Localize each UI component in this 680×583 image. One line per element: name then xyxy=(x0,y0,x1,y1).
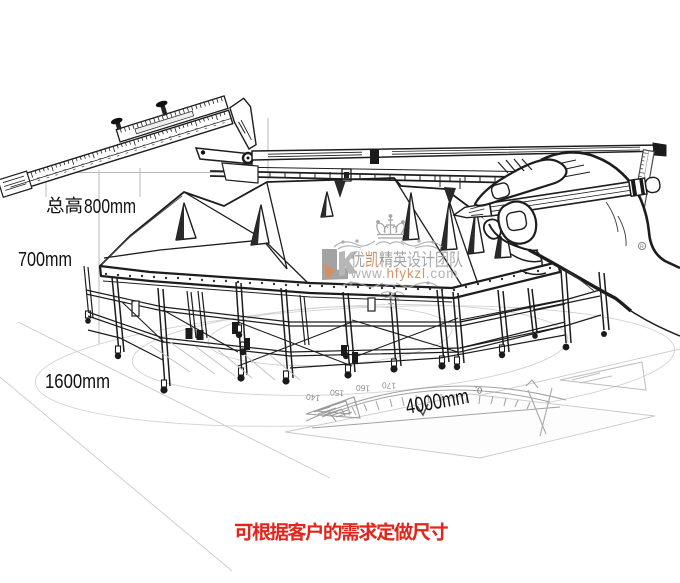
svg-text:150: 150 xyxy=(329,387,344,398)
svg-text:170: 170 xyxy=(381,380,396,390)
svg-text:1600mm: 1600mm xyxy=(45,370,110,393)
svg-text:800mm: 800mm xyxy=(84,195,136,218)
svg-text:0,: 0, xyxy=(474,385,482,396)
svg-text:R: R xyxy=(640,245,644,251)
svg-text:www.hfykzl.com: www.hfykzl.com xyxy=(350,266,458,281)
svg-text:700mm: 700mm xyxy=(18,248,72,271)
svg-text:140: 140 xyxy=(305,392,321,404)
svg-text:160: 160 xyxy=(355,383,370,394)
